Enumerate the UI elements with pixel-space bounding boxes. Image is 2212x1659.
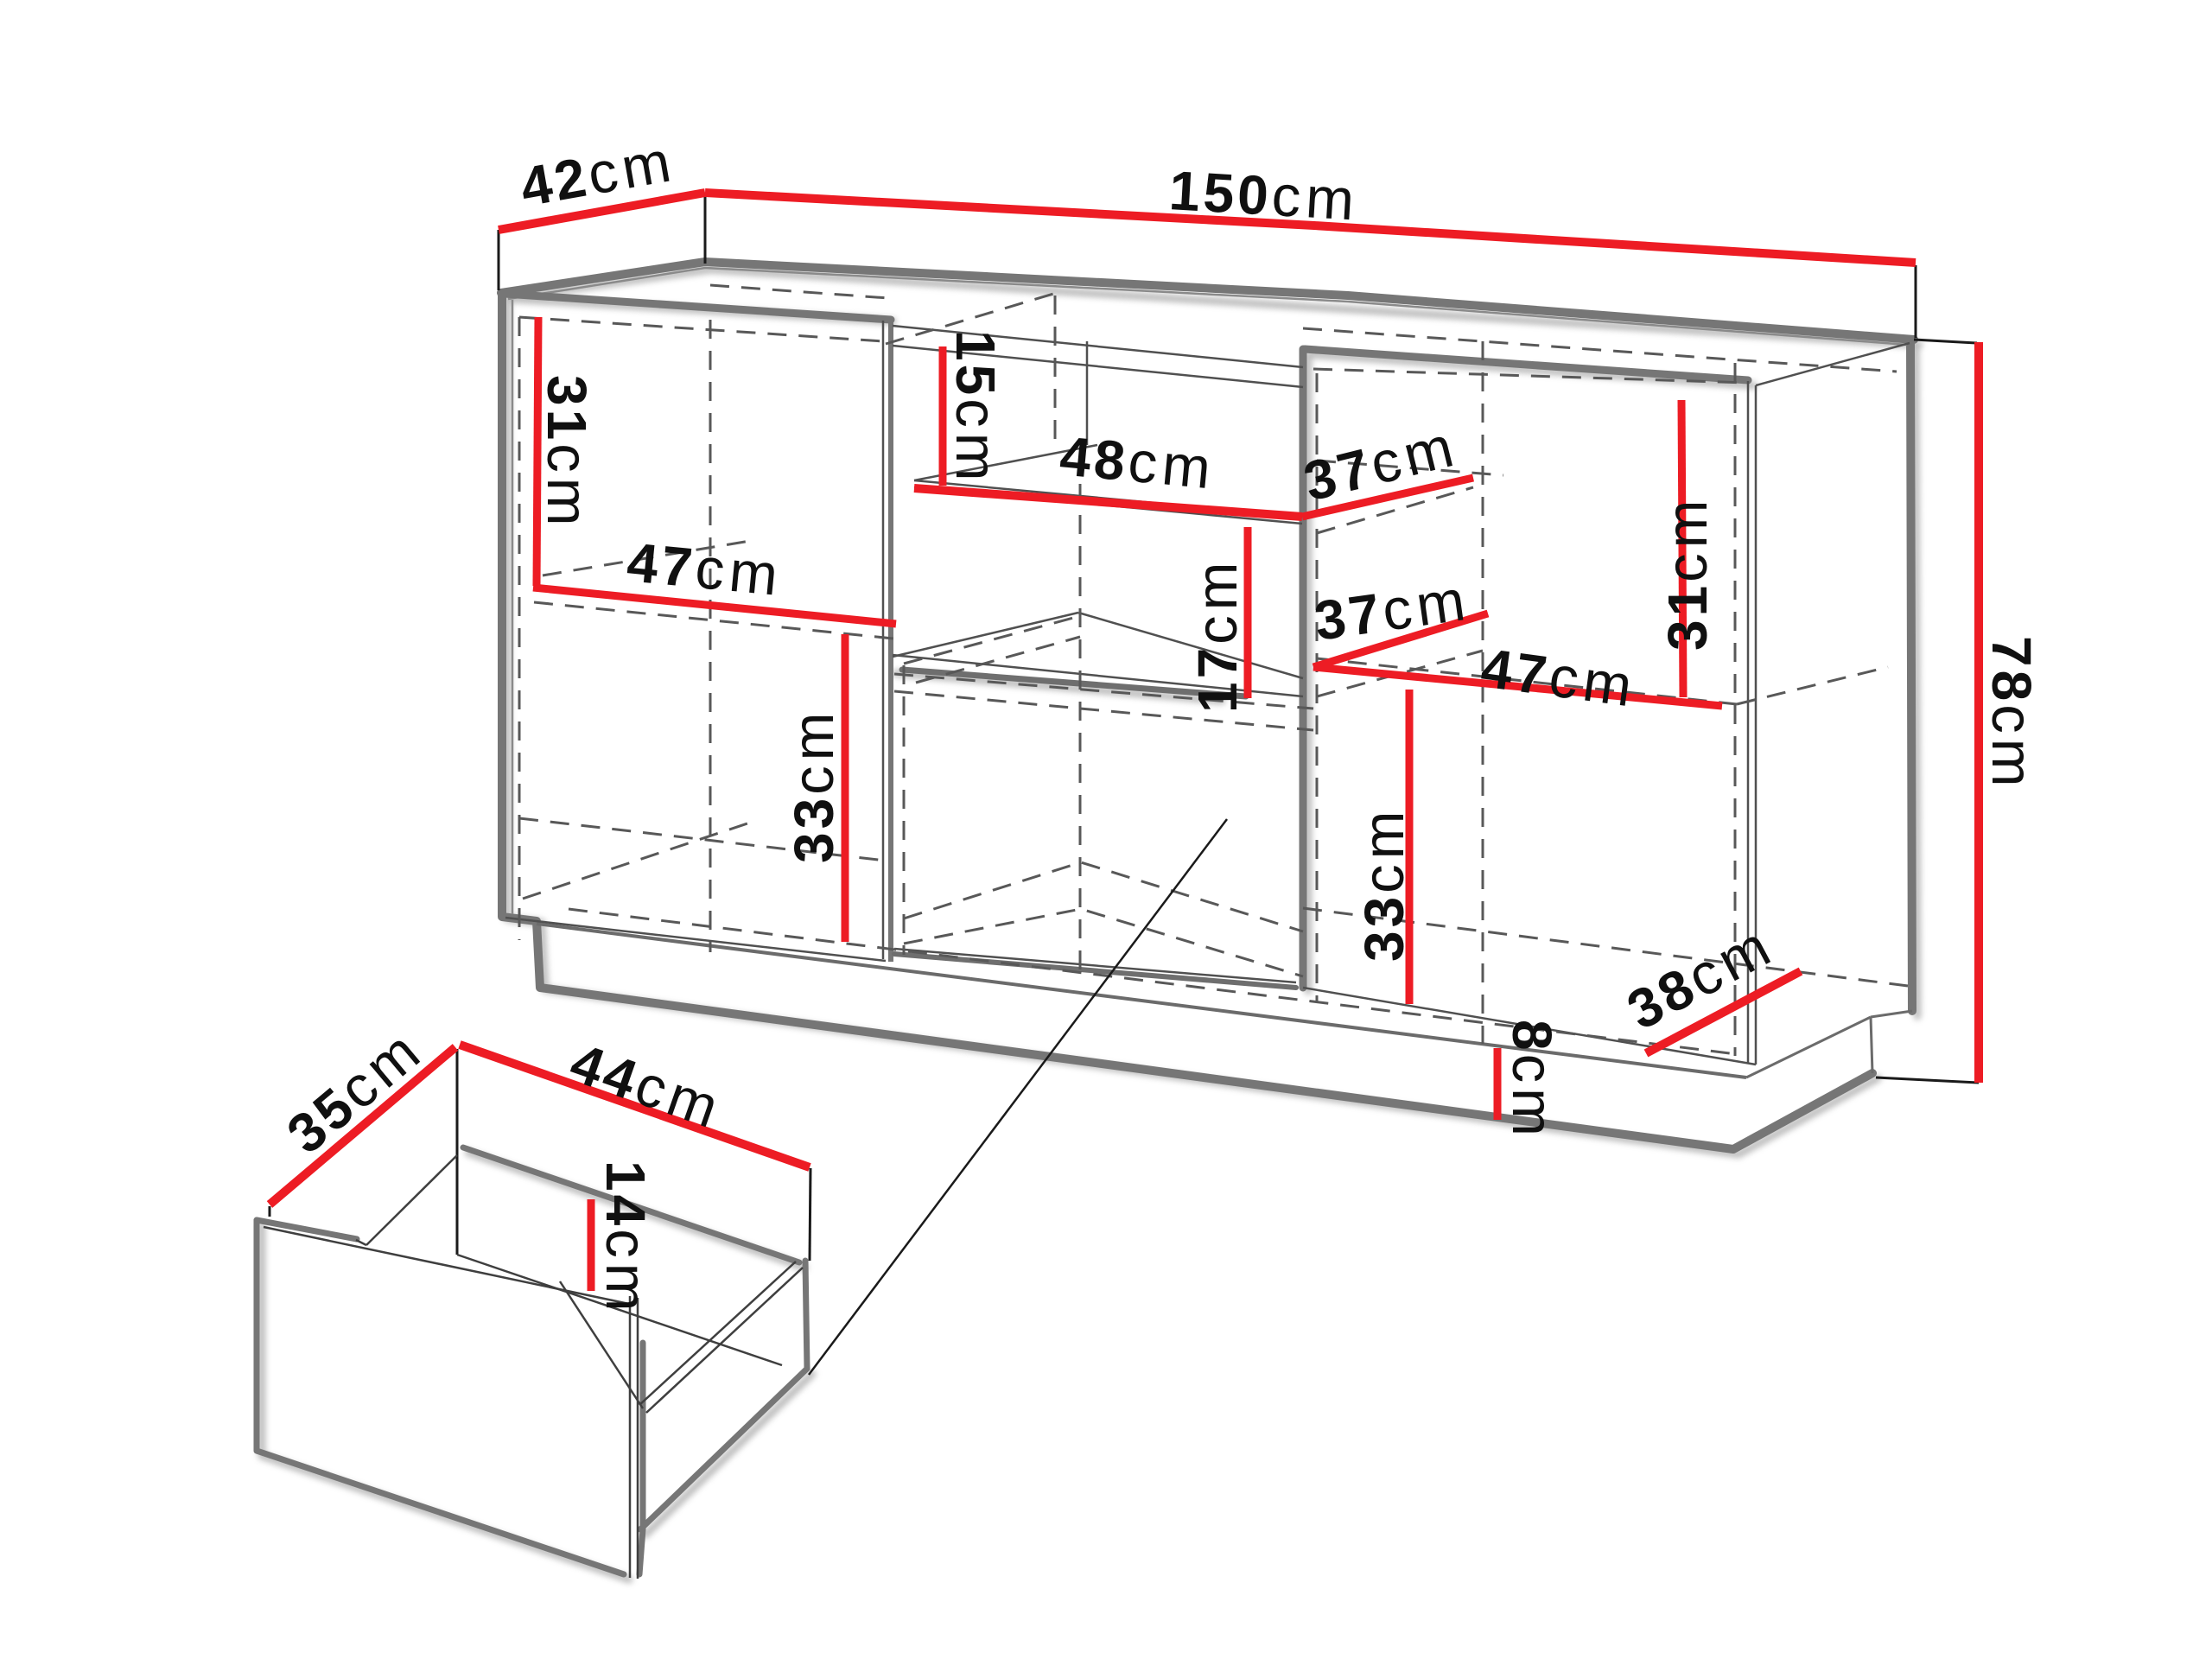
svg-text:8cm: 8cm	[1500, 1020, 1565, 1141]
svg-text:31cm: 31cm	[1655, 495, 1719, 652]
svg-text:15cm: 15cm	[944, 330, 1008, 486]
svg-text:33cm: 33cm	[1351, 806, 1416, 963]
svg-text:78cm: 78cm	[1980, 636, 2044, 792]
svg-text:150cm: 150cm	[1167, 157, 1361, 233]
svg-text:33cm: 33cm	[781, 708, 846, 864]
svg-text:14cm: 14cm	[594, 1160, 658, 1317]
svg-text:31cm: 31cm	[535, 375, 600, 531]
svg-text:17cm: 17cm	[1185, 557, 1249, 714]
